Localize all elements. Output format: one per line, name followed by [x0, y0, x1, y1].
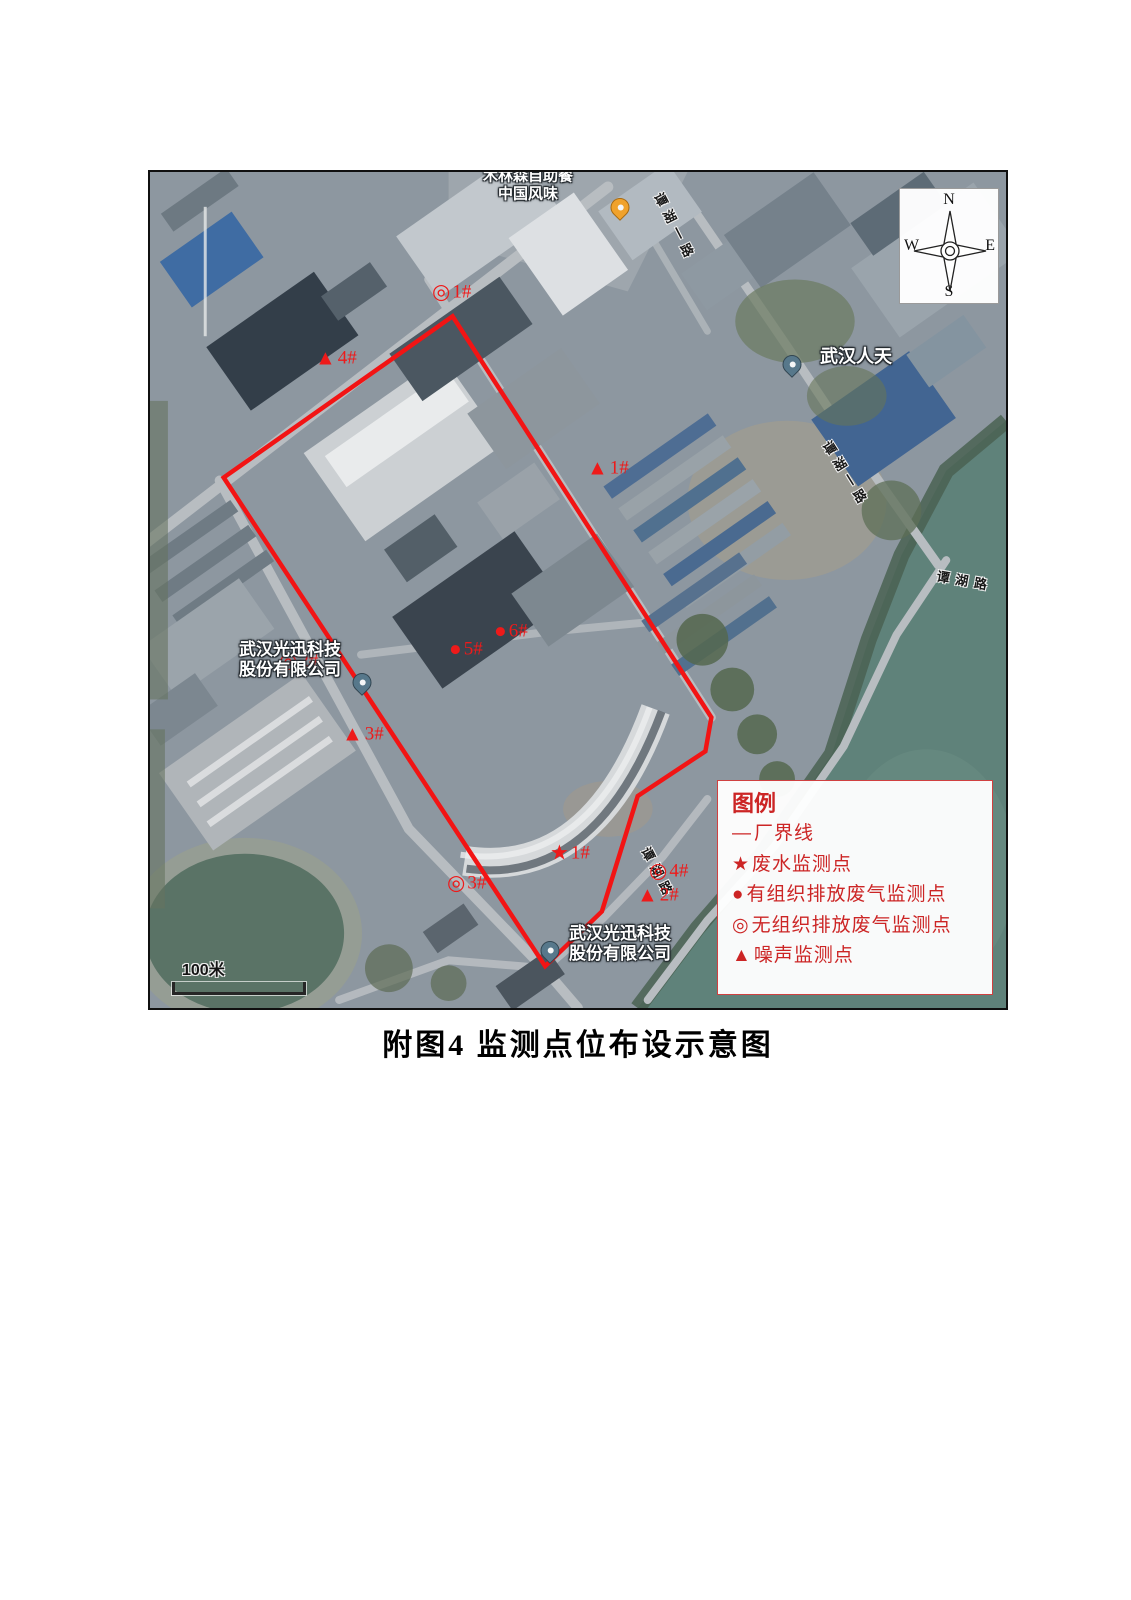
legend-item-label: 废水监测点 — [752, 850, 852, 881]
marker-label: 1# — [452, 283, 471, 302]
legend-item: ●有组织排放废气监测点 — [732, 880, 980, 911]
legend-item: ▲噪声监测点 — [732, 941, 980, 972]
monitoring-point-marker: ★1# — [550, 843, 590, 864]
monitoring-point-marker: ▲1# — [587, 458, 629, 479]
scale-bar: 100米 — [172, 956, 312, 995]
legend-item-label: 无组织排放废气监测点 — [752, 911, 952, 942]
marker-symbol-icon: ▲ — [587, 458, 608, 479]
legend-item: —厂界线 — [732, 819, 980, 850]
marker-label: 4# — [338, 349, 357, 368]
place-label-line: 武汉人天 — [820, 346, 892, 367]
marker-symbol-icon: ▲ — [637, 885, 658, 906]
marker-label: 2# — [660, 886, 679, 905]
place-label: 武汉人天 — [820, 346, 892, 367]
monitoring-point-marker: ▲2# — [637, 885, 679, 906]
marker-label: 6# — [509, 622, 528, 641]
place-pin-icon — [537, 937, 564, 964]
monitoring-point-marker: ●5# — [449, 639, 483, 660]
scale-bar-line — [172, 982, 306, 995]
place-label: 武汉光迅科技股份有限公司 — [239, 640, 341, 680]
legend-item-label: 有组织排放废气监测点 — [746, 880, 946, 911]
legend-items: —厂界线★废水监测点●有组织排放废气监测点◎无组织排放废气监测点▲噪声监测点 — [732, 819, 980, 972]
place-label-line: 武汉光迅科技 — [239, 640, 341, 660]
road-label: 谭湖一路 — [650, 189, 701, 265]
marker-label: 3# — [467, 874, 486, 893]
map-legend: 图例 —厂界线★废水监测点●有组织排放废气监测点◎无组织排放废气监测点▲噪声监测… — [717, 780, 993, 995]
map-overlays: 谭湖一路谭湖一路谭湖路谭湖路 ◎1#▲4#▲1#●6#●5#◎2#▲3#★1#◎… — [150, 172, 1006, 1008]
marker-symbol-icon: ▲ — [315, 348, 336, 369]
figure-caption: 附图4 监测点位布设示意图 — [148, 1020, 1008, 1064]
road-label: 谭湖路 — [935, 566, 994, 595]
marker-label: 1# — [610, 459, 629, 478]
place-label-line: 武汉光迅科技 — [569, 924, 671, 944]
legend-symbol-icon: ★ — [732, 850, 749, 881]
map-figure: 谭湖一路谭湖一路谭湖路谭湖路 ◎1#▲4#▲1#●6#●5#◎2#▲3#★1#◎… — [148, 170, 1008, 1010]
monitoring-point-marker: ▲3# — [342, 724, 384, 745]
monitoring-point-marker: ◎3# — [447, 873, 486, 894]
legend-symbol-icon: ◎ — [732, 911, 749, 942]
marker-symbol-icon: ◎ — [649, 861, 667, 882]
compass-east-label: E — [985, 237, 995, 255]
legend-symbol-icon: — — [732, 819, 751, 850]
compass-rose: N S W E — [899, 188, 999, 304]
place-pin-icon — [779, 351, 806, 378]
marker-symbol-icon: ▲ — [342, 724, 363, 745]
road-label: 谭湖一路 — [819, 437, 875, 512]
scale-bar-label: 100米 — [172, 956, 312, 980]
monitoring-point-marker: ◎4# — [649, 861, 688, 882]
place-label-line: 木林森自助餐 — [483, 170, 573, 185]
marker-label: 3# — [365, 725, 384, 744]
place-label-line: 股份有限公司 — [239, 660, 341, 680]
monitoring-point-marker: ◎1# — [432, 282, 471, 303]
place-label-line: 中国风味 — [483, 185, 573, 203]
place-label: 武汉光迅科技股份有限公司 — [569, 924, 671, 964]
marker-label: 4# — [669, 862, 688, 881]
compass-west-label: W — [904, 237, 919, 255]
restaurant-pin-icon — [607, 194, 634, 221]
legend-title: 图例 — [732, 789, 980, 819]
legend-item-label: 厂界线 — [754, 819, 814, 850]
legend-item: ◎无组织排放废气监测点 — [732, 911, 980, 942]
legend-symbol-icon: ▲ — [732, 941, 751, 972]
marker-symbol-icon: ● — [494, 621, 507, 642]
place-pin-icon — [349, 669, 376, 696]
marker-label: 5# — [464, 640, 483, 659]
marker-symbol-icon: ◎ — [447, 873, 465, 894]
monitoring-point-marker: ●6# — [494, 621, 528, 642]
legend-symbol-icon: ● — [732, 880, 743, 911]
place-label: 木林森自助餐中国风味 — [483, 170, 573, 203]
compass-south-label: S — [945, 283, 954, 301]
monitoring-point-marker: ▲4# — [315, 348, 357, 369]
marker-symbol-icon: ● — [449, 639, 462, 660]
marker-symbol-icon: ★ — [550, 843, 569, 864]
document-page: { "caption": "附图4 监测点位布设示意图", "map": { "… — [0, 0, 1131, 1600]
legend-item: ★废水监测点 — [732, 850, 980, 881]
marker-label: 1# — [571, 844, 590, 863]
compass-north-label: N — [943, 191, 955, 209]
place-label-line: 股份有限公司 — [569, 944, 671, 964]
marker-symbol-icon: ◎ — [432, 282, 450, 303]
legend-item-label: 噪声监测点 — [754, 941, 854, 972]
